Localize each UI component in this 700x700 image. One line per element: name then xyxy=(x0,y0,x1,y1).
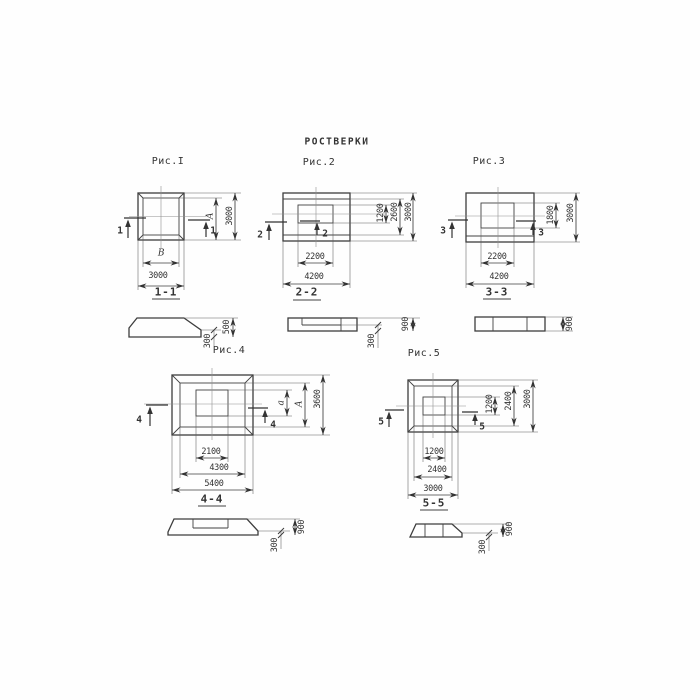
fig2-dim-bottom-outer: 4200 xyxy=(304,273,323,282)
fig4-section-mark-left: 4 xyxy=(136,415,141,425)
fig4-caption: Рис.4 xyxy=(213,346,246,356)
fig3-section-linework xyxy=(475,317,573,331)
fig4-section-height-edge: 300 xyxy=(271,538,280,552)
fig4-section-linework xyxy=(168,519,300,549)
fig3-dim-bottom-inner: 2200 xyxy=(487,253,506,262)
fig1-plan-linework xyxy=(124,186,241,299)
fig5-section-height-total: 900 xyxy=(506,522,515,536)
fig3-dim-right-inner: 1800 xyxy=(547,205,556,224)
fig4-dim-bottom-inner: 2100 xyxy=(201,448,220,457)
fig4-dim-right-outer: 3600 xyxy=(314,389,323,408)
fig1-dim-bottom-inner: В xyxy=(158,250,164,259)
page-title: РОСТВЕРКИ xyxy=(305,137,370,147)
fig3-dim-bottom-outer: 4200 xyxy=(489,273,508,282)
fig5-dim-bottom-inner: 1200 xyxy=(424,448,443,457)
fig5-dim-right-inner: 1200 xyxy=(486,394,495,413)
fig3-section-height-total: 900 xyxy=(566,317,575,331)
fig4-dim-bottom-mid: 4300 xyxy=(209,464,228,473)
drawing-linework xyxy=(0,0,700,700)
drawing-sheet: РОСТВЕРКИ Рис.I Рис.2 Рис.3 Рис.4 Рис.5 … xyxy=(0,0,700,700)
fig4-dim-bottom-outer: 5400 xyxy=(204,480,223,489)
fig5-dim-right-outer: 3000 xyxy=(524,389,533,408)
fig2-section-mark-left: 2 xyxy=(257,230,262,240)
fig2-section-mark-right: 2 xyxy=(322,229,327,239)
fig5-section-linework xyxy=(410,524,508,551)
fig1-section-title: 1-1 xyxy=(155,287,178,298)
fig2-dim-right-outer: 3000 xyxy=(405,202,414,221)
fig3-plan-linework xyxy=(448,187,580,299)
fig2-section-height-edge: 300 xyxy=(368,334,377,348)
fig5-dim-bottom-outer: 3000 xyxy=(423,485,442,494)
fig2-caption: Рис.2 xyxy=(303,158,336,168)
fig3-dim-right-outer: 3000 xyxy=(567,203,576,222)
fig4-section-title: 4-4 xyxy=(201,494,224,505)
fig5-section-height-edge: 300 xyxy=(479,540,488,554)
fig5-caption: Рис.5 xyxy=(408,349,441,359)
fig5-section-mark-right: 5 xyxy=(479,422,484,432)
fig4-section-height-total: 900 xyxy=(298,520,307,534)
fig3-section-mark-right: 3 xyxy=(538,228,543,238)
fig2-section-height-total: 900 xyxy=(402,317,411,331)
fig5-dim-bottom-mid: 2400 xyxy=(427,466,446,475)
fig3-caption: Рис.3 xyxy=(473,157,506,167)
fig4-dim-right-mid: А xyxy=(296,401,305,408)
fig1-dim-bottom-outer: 3000 xyxy=(148,272,167,281)
fig3-section-title: 3-3 xyxy=(486,287,509,298)
fig5-plan-linework xyxy=(385,373,538,510)
fig2-dim-right-mid: 2600 xyxy=(391,202,400,221)
fig2-dim-bottom-inner: 2200 xyxy=(305,253,324,262)
fig5-section-mark-left: 5 xyxy=(378,417,383,427)
fig1-section-height-total: 500 xyxy=(223,320,232,334)
fig2-section-title: 2-2 xyxy=(296,287,319,298)
fig1-dim-right-outer: 3000 xyxy=(226,206,235,225)
fig4-dim-right-inner: а xyxy=(278,400,287,405)
fig1-section-mark-left: 1 xyxy=(117,226,122,236)
fig4-plan-linework xyxy=(144,368,330,506)
fig1-caption: Рис.I xyxy=(152,157,185,167)
fig5-dim-right-mid: 2400 xyxy=(505,391,514,410)
fig1-dim-right-inner: А xyxy=(207,213,216,220)
fig5-section-title: 5-5 xyxy=(423,498,446,509)
fig1-section-mark-right: 1 xyxy=(210,226,215,236)
fig2-dim-right-inner: 1200 xyxy=(377,203,386,222)
fig4-section-mark-right: 4 xyxy=(270,420,275,430)
fig1-section-height-edge: 300 xyxy=(204,334,213,348)
fig3-section-mark-left: 3 xyxy=(440,226,445,236)
